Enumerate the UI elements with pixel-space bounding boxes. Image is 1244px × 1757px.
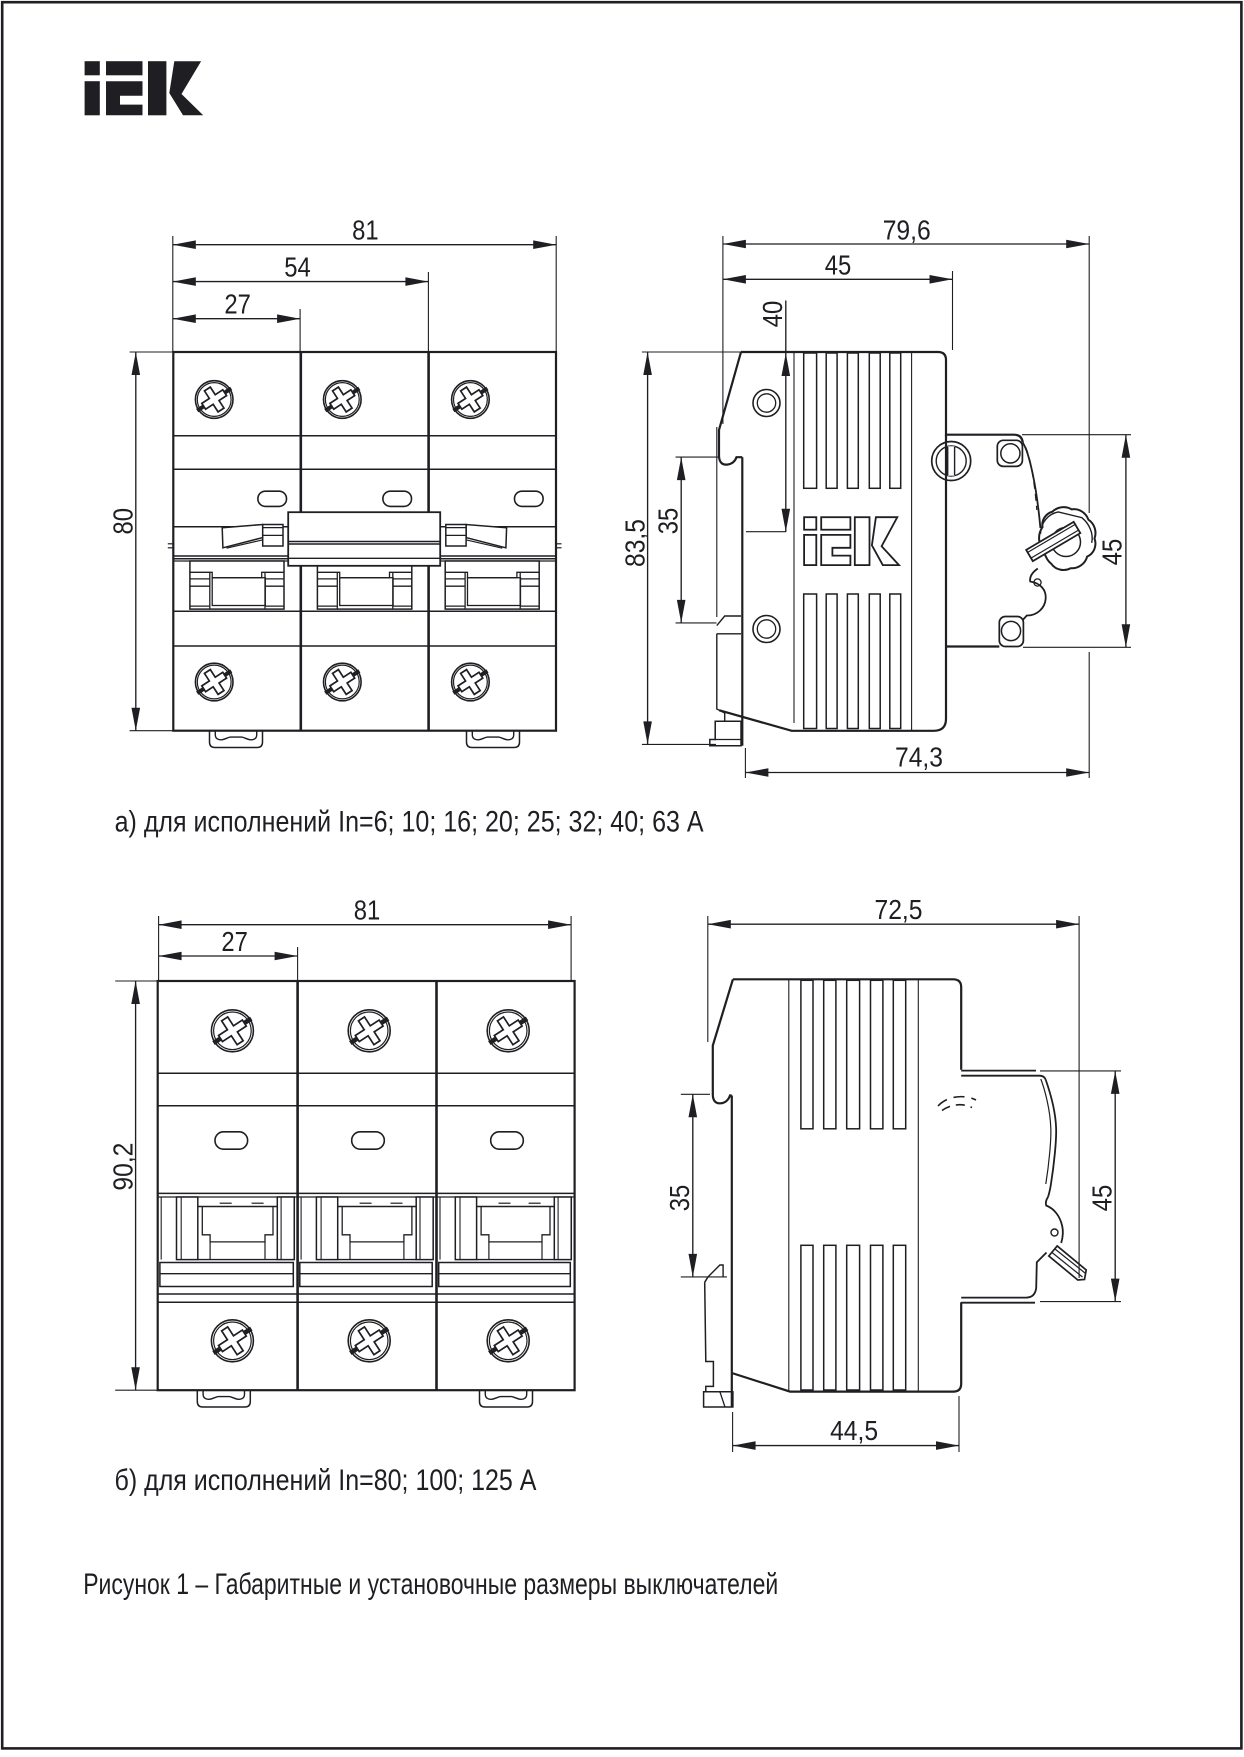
svg-text:45: 45	[1097, 539, 1128, 566]
svg-text:45: 45	[1087, 1185, 1118, 1212]
svg-text:54: 54	[284, 251, 311, 282]
svg-text:Рисунок 1 – Габаритные и устан: Рисунок 1 – Габаритные и установочные ра…	[83, 1568, 778, 1601]
svg-text:79,6: 79,6	[883, 215, 931, 246]
svg-text:35: 35	[653, 508, 684, 535]
svg-text:40: 40	[757, 301, 788, 328]
svg-text:б) для исполнений In=80; 100;: б) для исполнений In=80; 100; 125 А	[115, 1464, 537, 1497]
svg-text:72,5: 72,5	[875, 894, 923, 925]
svg-text:27: 27	[221, 926, 248, 957]
svg-text:83,5: 83,5	[620, 519, 651, 567]
svg-text:90,2: 90,2	[107, 1143, 138, 1191]
svg-text:74,3: 74,3	[895, 742, 943, 773]
svg-text:27: 27	[224, 289, 251, 320]
svg-text:45: 45	[825, 249, 852, 280]
svg-text:81: 81	[352, 215, 379, 246]
svg-text:35: 35	[664, 1185, 695, 1212]
svg-text:а) для исполнений In=6; 10; 16: а) для исполнений In=6; 10; 16; 20; 25; …	[115, 806, 704, 839]
svg-text:80: 80	[108, 508, 139, 535]
svg-text:81: 81	[354, 895, 381, 926]
svg-text:44,5: 44,5	[830, 1415, 878, 1446]
